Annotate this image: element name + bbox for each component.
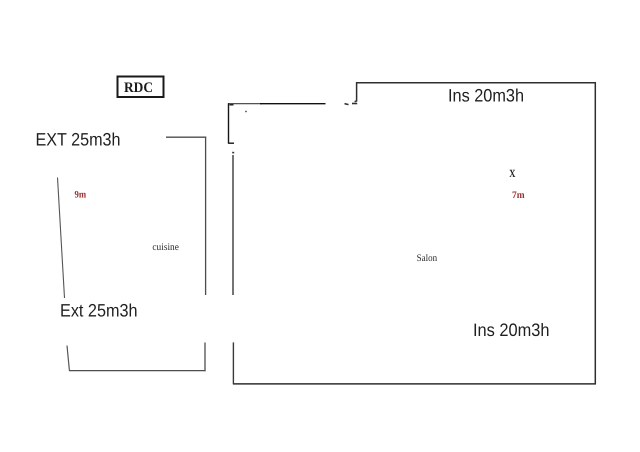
svg-text:9m: 9m (75, 190, 87, 201)
svg-text:Salon: Salon (417, 253, 438, 264)
svg-text:cuisine: cuisine (152, 242, 179, 253)
svg-text:EXT 25m3h: EXT 25m3h (36, 130, 121, 150)
svg-text:Ext 25m3h: Ext 25m3h (60, 300, 138, 320)
svg-text:7m: 7m (512, 190, 525, 201)
svg-text:X: X (509, 168, 515, 180)
svg-text:Ins 20m3h: Ins 20m3h (473, 320, 550, 340)
svg-text:Ins 20m3h: Ins 20m3h (448, 86, 524, 106)
svg-text:RDC: RDC (124, 80, 153, 96)
